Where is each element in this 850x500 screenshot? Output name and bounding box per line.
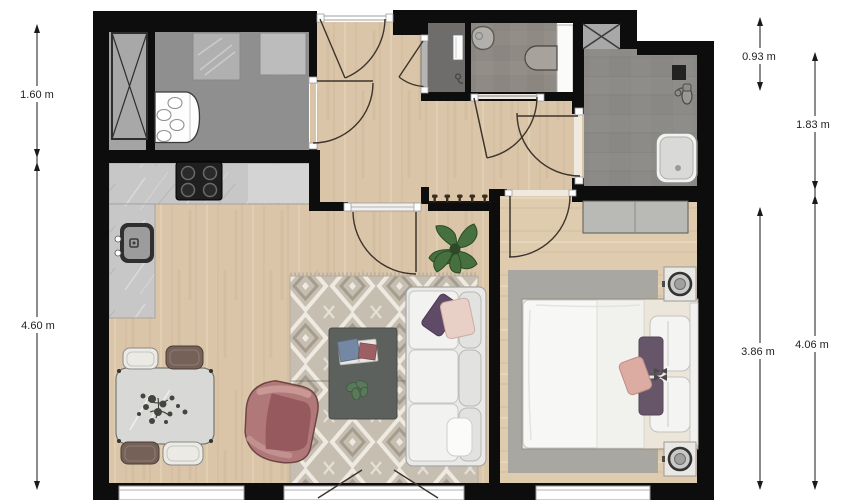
svg-text:0.93 m: 0.93 m xyxy=(742,51,776,63)
svg-text:1.60 m: 1.60 m xyxy=(20,89,54,101)
svg-text:3.86 m: 3.86 m xyxy=(741,346,775,358)
svg-text:1.83 m: 1.83 m xyxy=(796,119,830,131)
svg-text:4.06 m: 4.06 m xyxy=(795,339,829,351)
svg-text:4.60 m: 4.60 m xyxy=(21,320,55,332)
